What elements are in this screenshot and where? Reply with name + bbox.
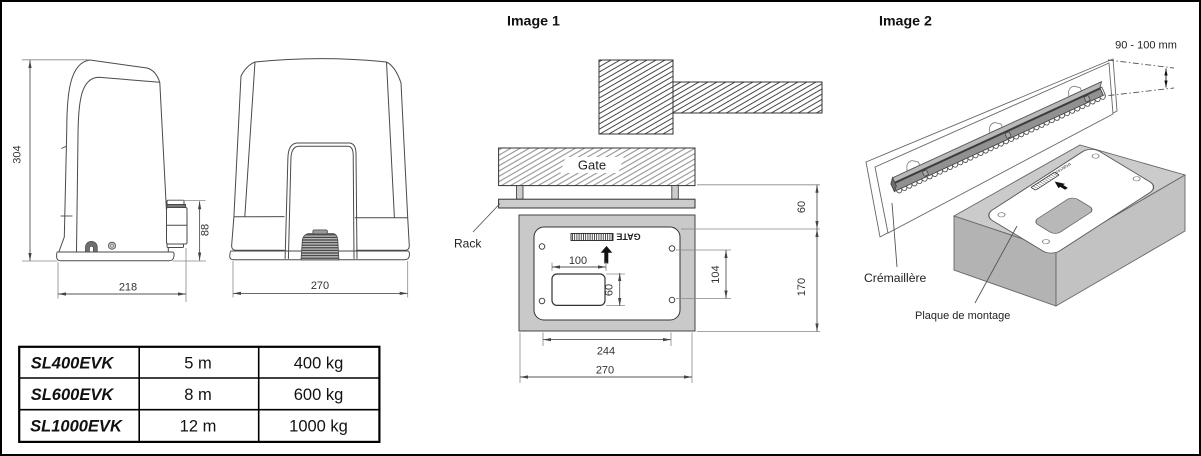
svg-text:244: 244 [597,346,615,358]
svg-text:SL600EVK: SL600EVK [31,386,115,404]
svg-text:SL1000EVK: SL1000EVK [30,418,123,436]
svg-text:Rack: Rack [454,237,482,251]
svg-text:Image 2: Image 2 [879,14,932,30]
svg-text:60: 60 [796,201,808,213]
svg-text:8 m: 8 m [184,386,212,404]
svg-text:1000 kg: 1000 kg [289,418,348,436]
svg-text:400 kg: 400 kg [294,354,344,372]
svg-text:304: 304 [12,145,24,163]
svg-text:SL400EVK: SL400EVK [31,354,115,372]
svg-text:90 - 100 mm: 90 - 100 mm [1115,40,1177,52]
svg-text:100: 100 [569,255,587,267]
svg-text:88: 88 [200,224,212,236]
svg-text:Gate: Gate [578,158,606,173]
svg-text:Plaque de montage: Plaque de montage [915,310,1010,322]
svg-text:GATE: GATE [616,232,640,242]
svg-text:Image 1: Image 1 [507,14,560,30]
svg-text:60: 60 [604,284,616,296]
svg-text:104: 104 [710,265,722,283]
svg-text:270: 270 [596,365,614,377]
svg-text:5 m: 5 m [184,354,212,372]
svg-text:Crémaillère: Crémaillère [864,271,927,285]
svg-text:170: 170 [796,278,808,296]
svg-text:270: 270 [311,280,329,292]
svg-text:600 kg: 600 kg [294,386,344,404]
svg-text:218: 218 [119,282,137,294]
svg-text:12 m: 12 m [180,418,217,436]
